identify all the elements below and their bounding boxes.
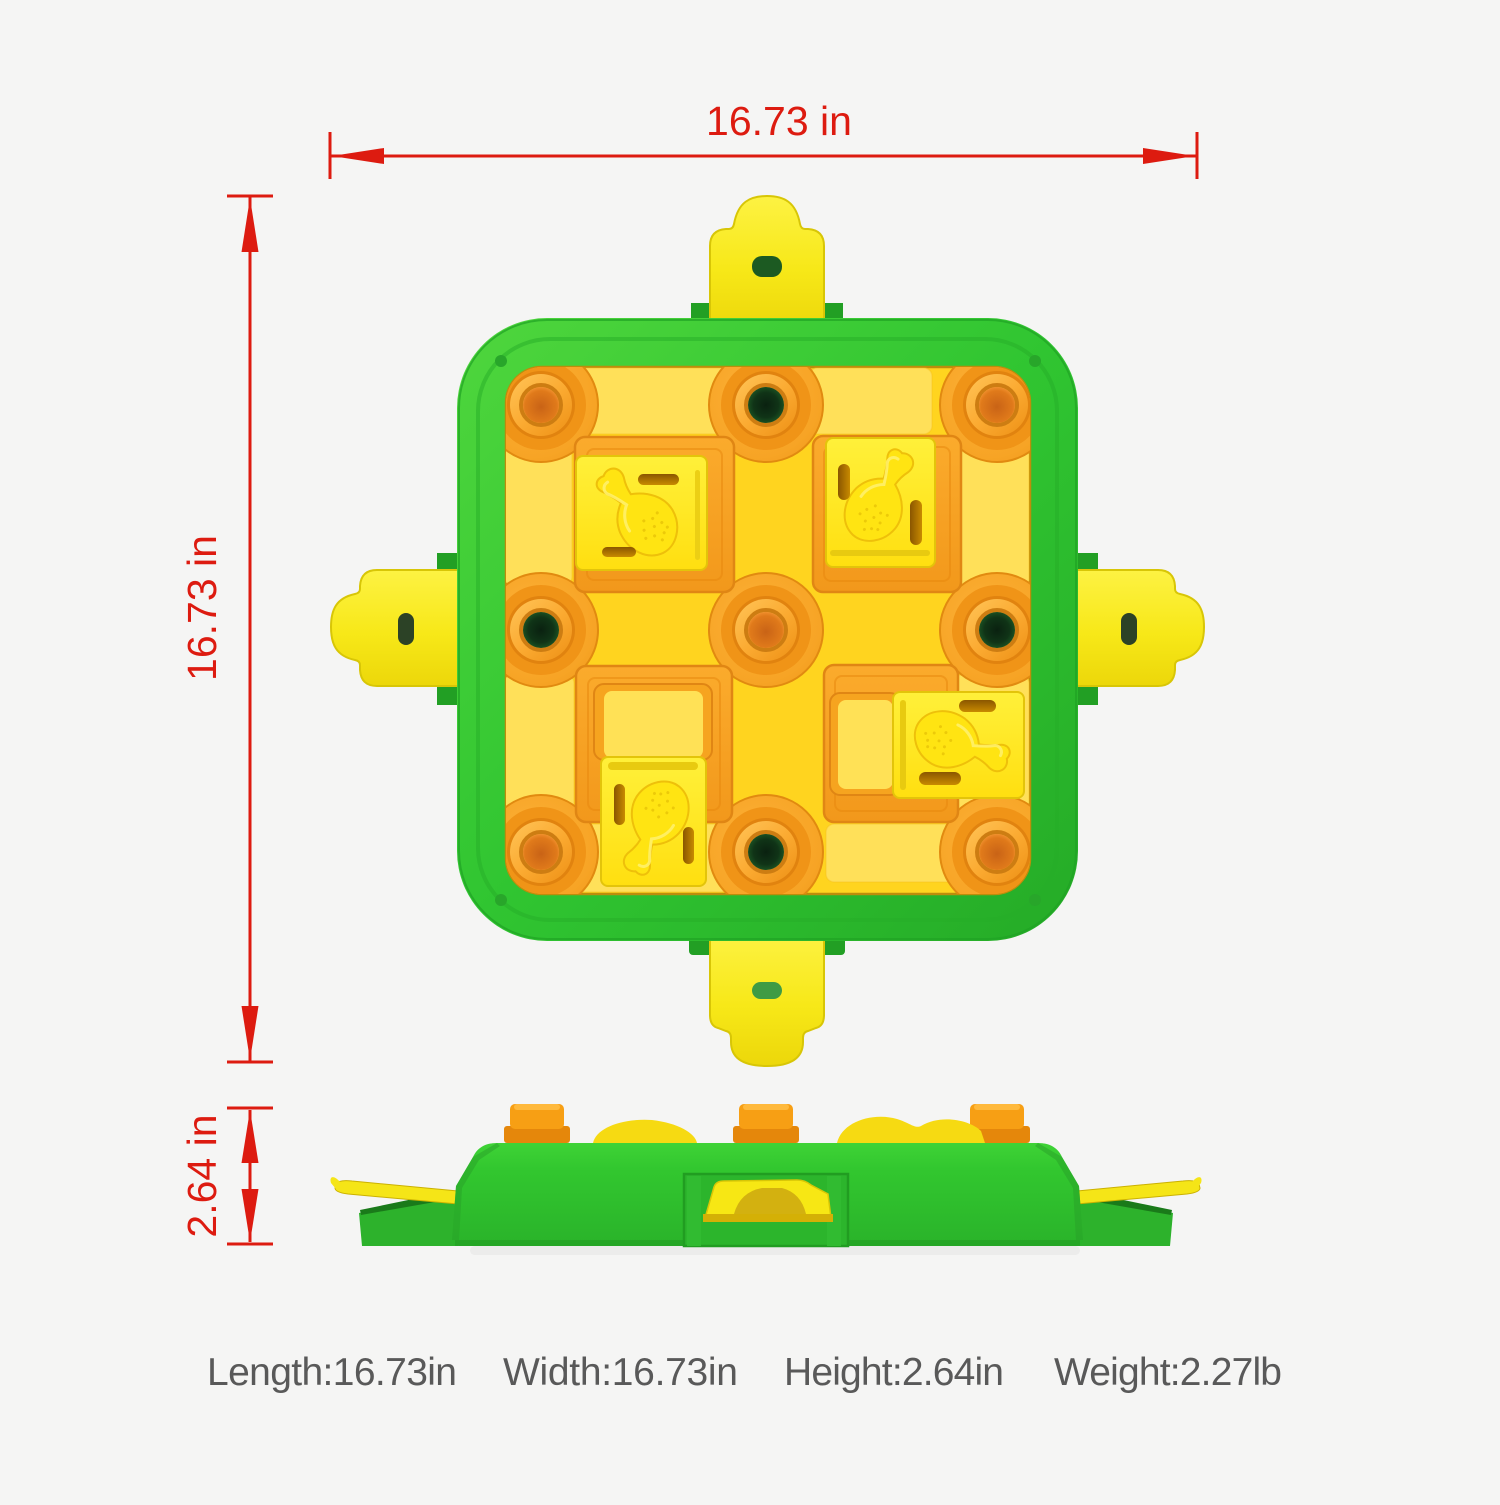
svg-text:Length:16.73in: Length:16.73in xyxy=(207,1351,457,1394)
svg-text:16.73 in: 16.73 in xyxy=(706,98,852,144)
svg-text:16.73 in: 16.73 in xyxy=(179,535,225,681)
svg-text:Weight:2.27lb: Weight:2.27lb xyxy=(1054,1351,1282,1394)
svg-text:2.64 in: 2.64 in xyxy=(179,1114,225,1237)
svg-text:Width:16.73in: Width:16.73in xyxy=(503,1351,738,1394)
svg-text:Height:2.64in: Height:2.64in xyxy=(784,1351,1004,1394)
